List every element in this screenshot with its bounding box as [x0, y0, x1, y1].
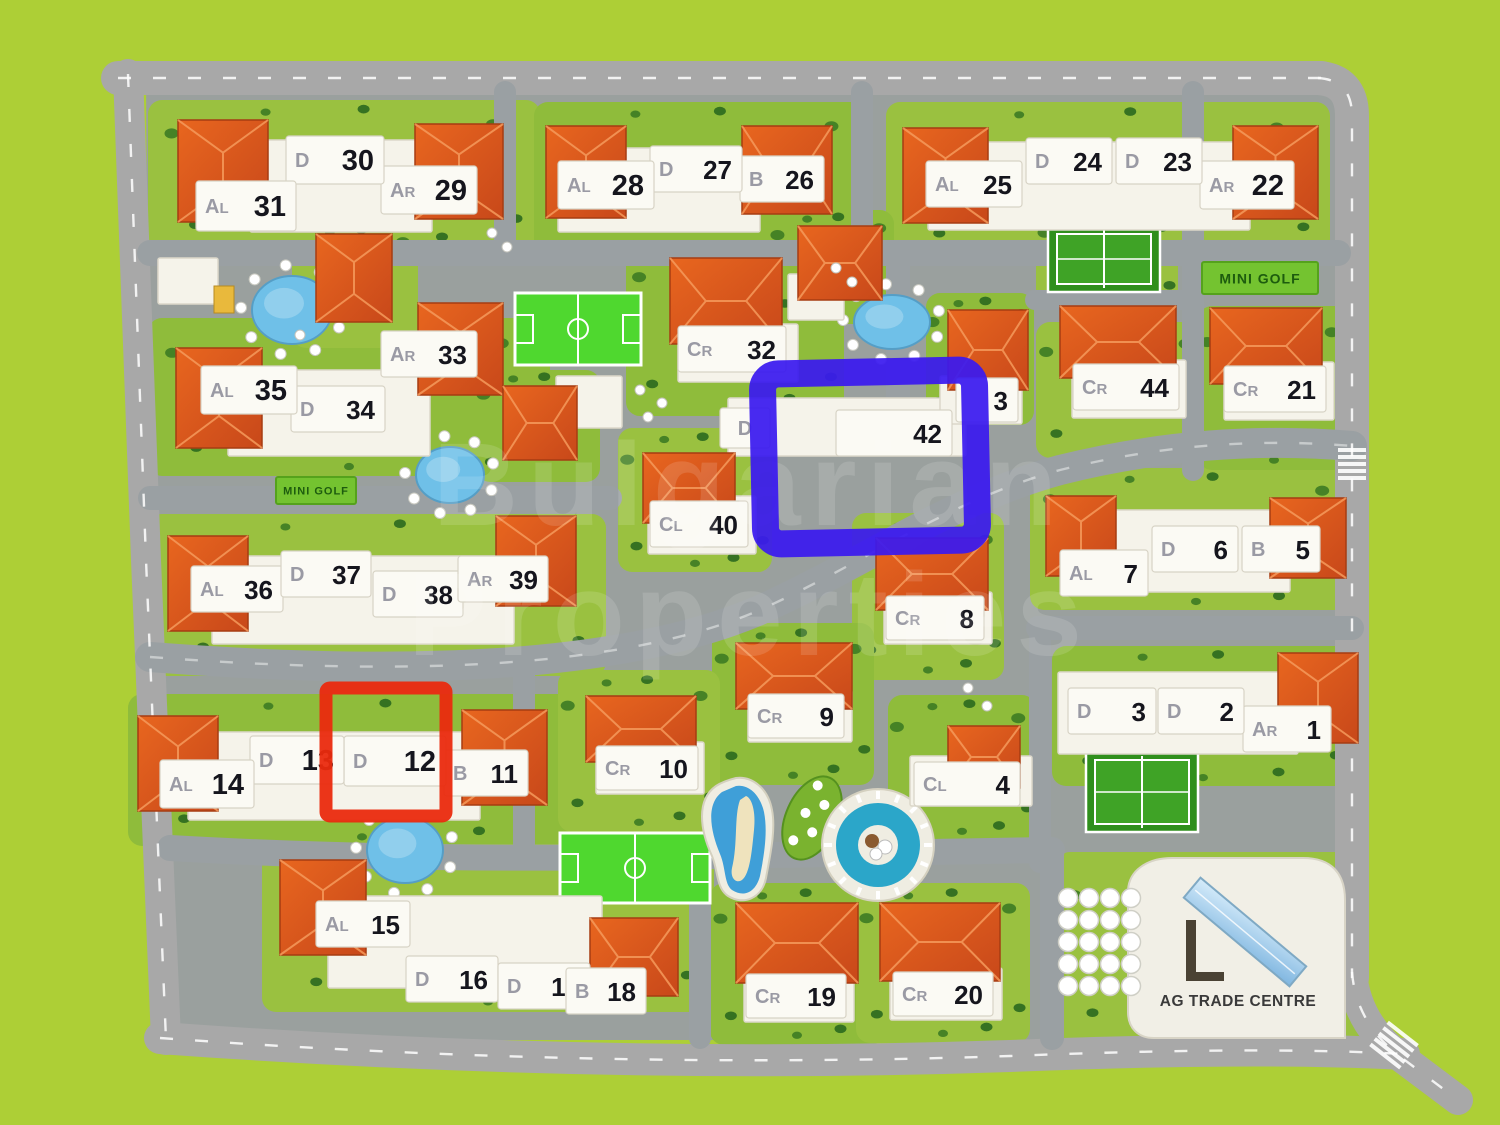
highlight-layer: [0, 0, 1500, 1125]
red-highlight-building-12: [326, 688, 446, 816]
blue-highlight-group: [762, 370, 978, 544]
blue-highlight-building-42: [762, 370, 978, 544]
site-plan-map: AG TRADE CENTREMINI GOLFMINI GOLFAR1D2D3…: [0, 0, 1500, 1125]
